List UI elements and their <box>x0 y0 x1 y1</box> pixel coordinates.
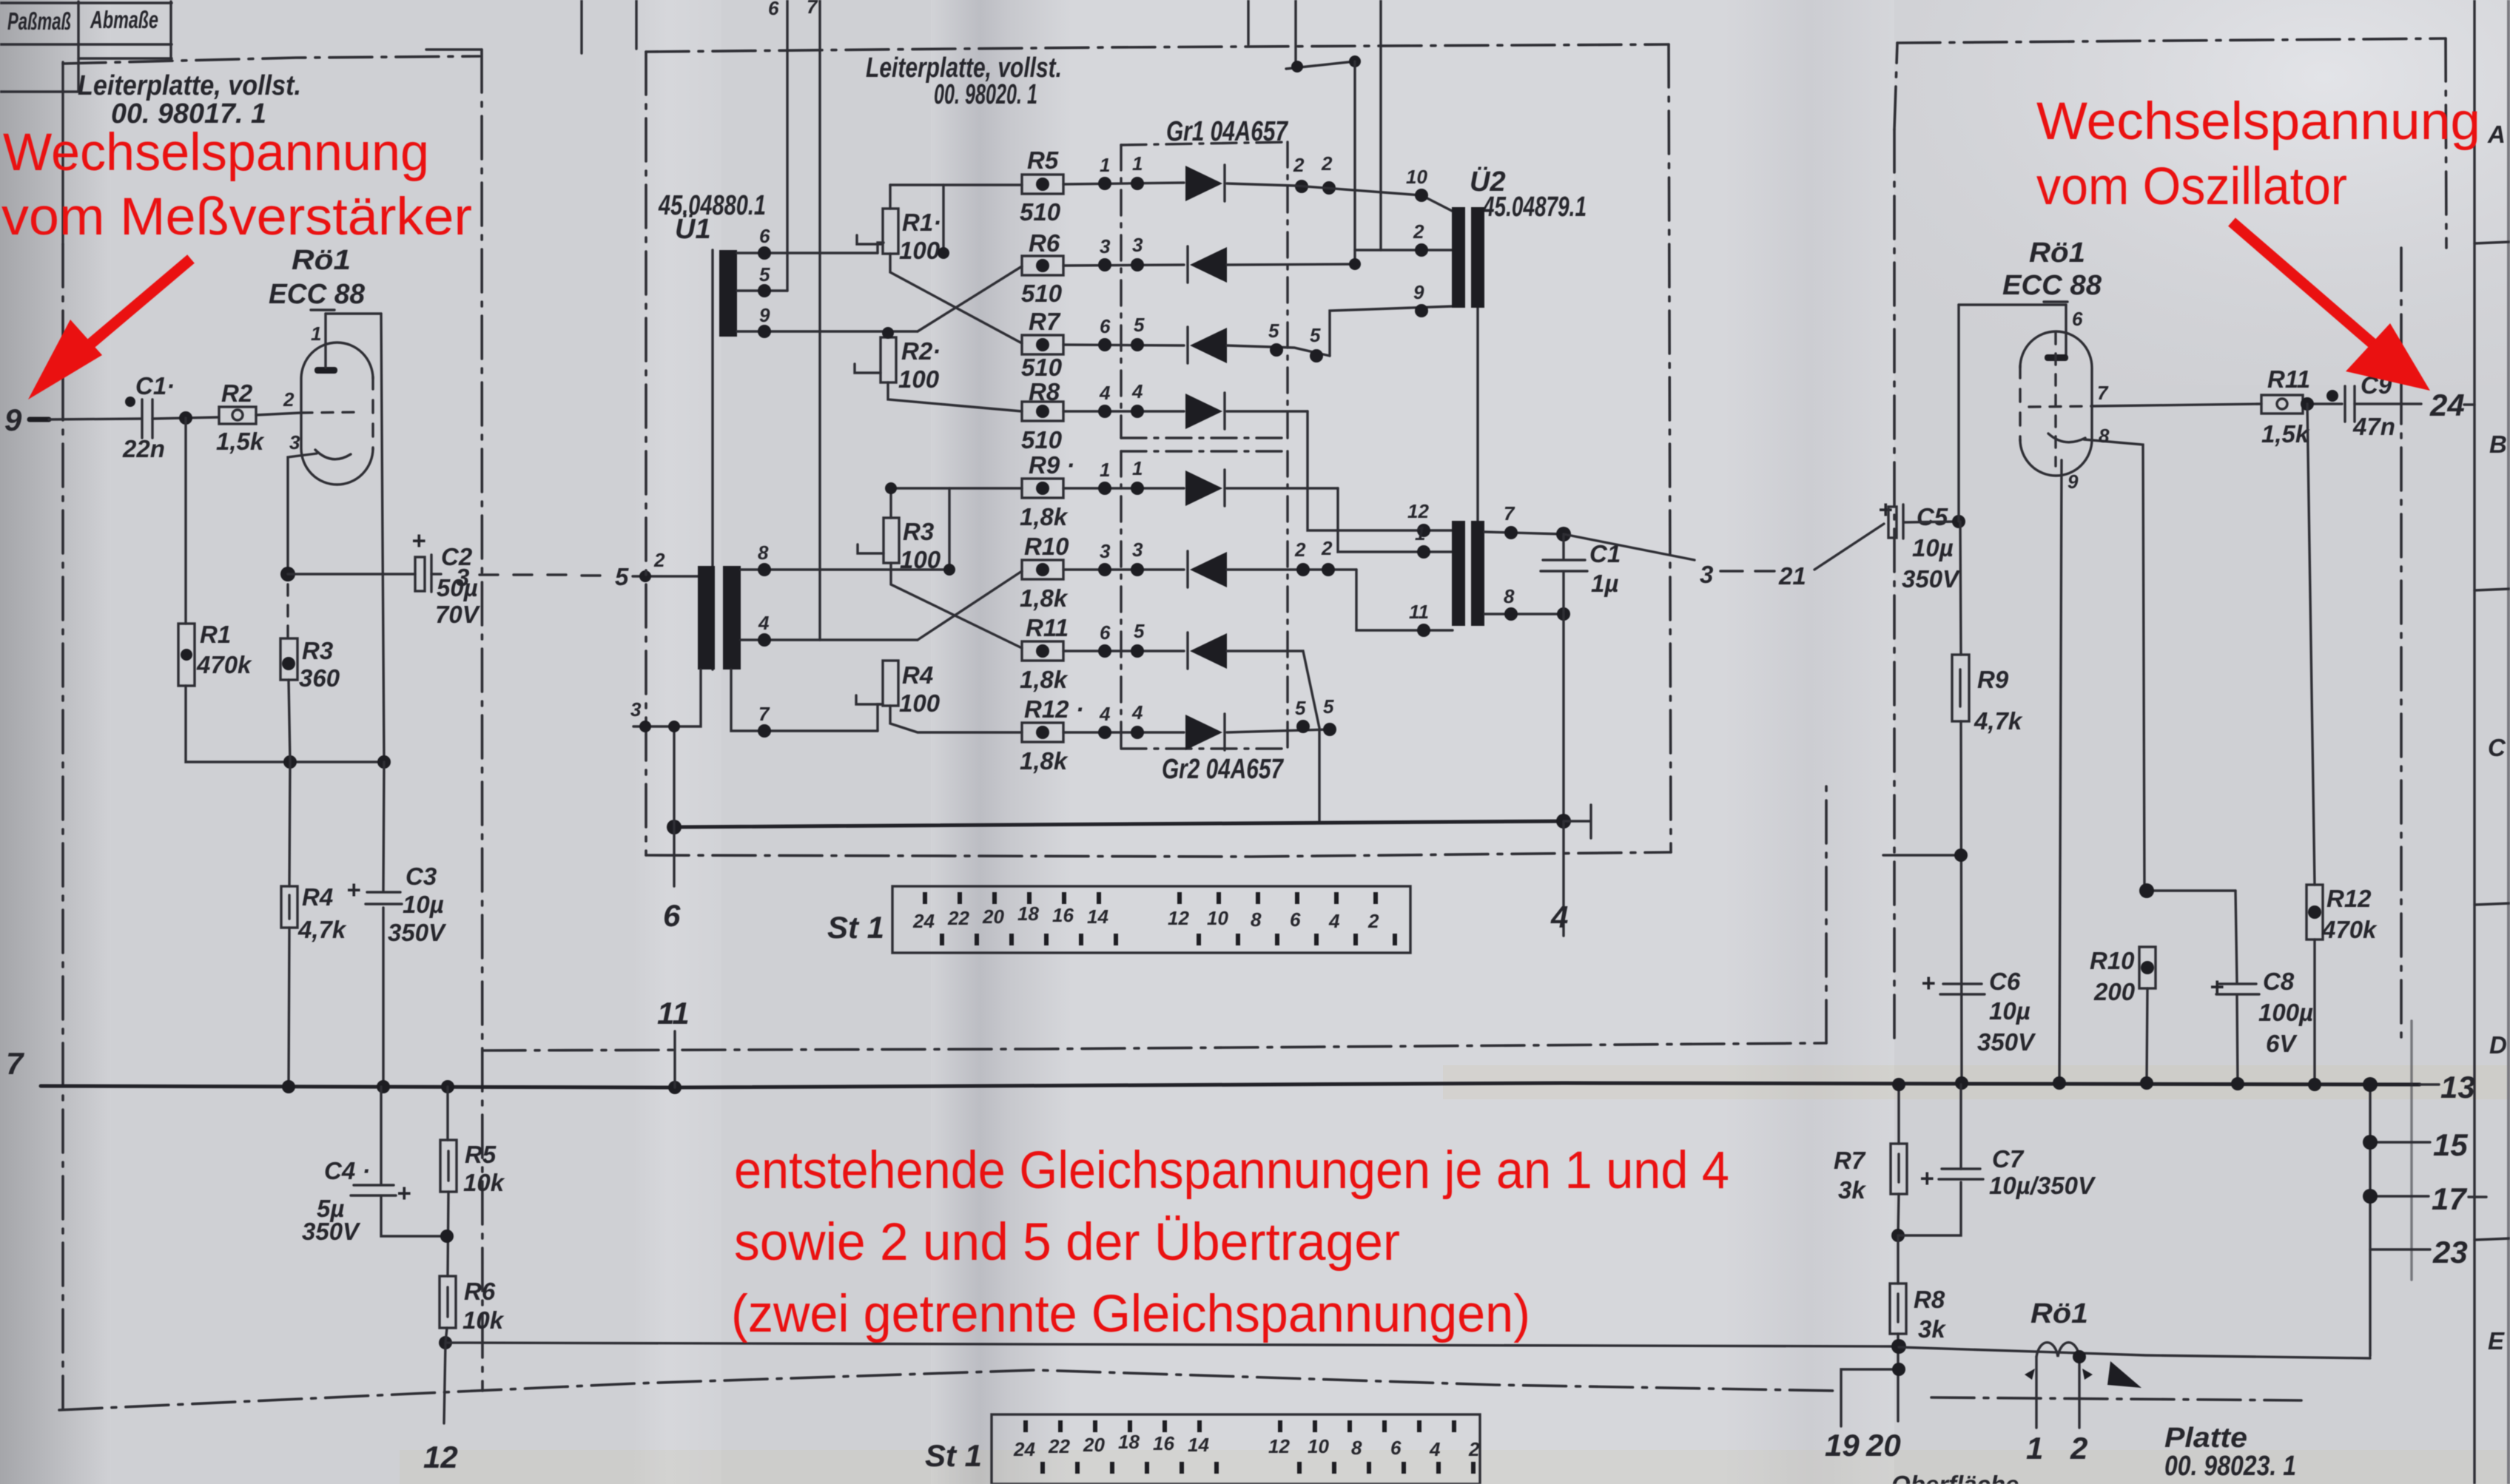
svg-text:16: 16 <box>1052 904 1074 926</box>
svg-text:10µ: 10µ <box>1989 997 2030 1025</box>
svg-text:350V: 350V <box>388 919 447 946</box>
svg-text:7: 7 <box>1504 502 1515 525</box>
svg-text:+: + <box>346 876 360 903</box>
svg-text:+: + <box>1878 496 1892 523</box>
svg-text:4: 4 <box>1131 380 1143 402</box>
svg-text:360: 360 <box>299 664 340 692</box>
svg-text:1: 1 <box>2026 1431 2043 1466</box>
svg-text:100µ: 100µ <box>2258 999 2313 1026</box>
svg-text:C4 ·: C4 · <box>324 1157 370 1184</box>
svg-text:5: 5 <box>1134 620 1145 642</box>
svg-text:10µ: 10µ <box>403 891 444 918</box>
svg-text:R10: R10 <box>1024 533 1069 560</box>
svg-text:10: 10 <box>1308 1435 1329 1457</box>
svg-text:21: 21 <box>1778 562 1806 590</box>
svg-text:2: 2 <box>653 549 665 571</box>
svg-text:vom Oszillator: vom Oszillator <box>2036 158 2347 216</box>
svg-text:R7: R7 <box>1029 308 1061 335</box>
svg-text:24: 24 <box>912 910 935 932</box>
svg-text:6: 6 <box>1290 908 1301 931</box>
svg-text:Platte: Platte <box>2164 1423 2247 1454</box>
svg-text:C: C <box>2488 734 2506 761</box>
svg-text:5: 5 <box>1134 314 1145 336</box>
svg-text:100: 100 <box>899 237 941 264</box>
svg-text:Paßmaß: Paßmaß <box>7 7 71 35</box>
svg-text:C3: C3 <box>406 863 437 890</box>
svg-text:15: 15 <box>2433 1127 2468 1162</box>
svg-text:+: + <box>1919 1164 1934 1192</box>
svg-text:8: 8 <box>758 542 769 564</box>
svg-text:2: 2 <box>1321 152 1333 175</box>
svg-text:13: 13 <box>2440 1070 2475 1104</box>
svg-text:5: 5 <box>1310 324 1321 346</box>
svg-text:4: 4 <box>1099 382 1111 404</box>
svg-text:7: 7 <box>807 0 818 18</box>
svg-text:12: 12 <box>1168 907 1189 929</box>
svg-text:4: 4 <box>1099 703 1111 725</box>
svg-text:B: B <box>2489 431 2507 458</box>
svg-text:2: 2 <box>283 388 295 411</box>
svg-text:10µ: 10µ <box>1912 534 1954 561</box>
svg-text:00. 98023. 1: 00. 98023. 1 <box>2164 1451 2296 1482</box>
svg-text:24: 24 <box>1013 1438 1035 1460</box>
svg-text:+: + <box>411 527 425 554</box>
svg-text:R9 ·: R9 · <box>1029 451 1074 479</box>
svg-text:Rö1: Rö1 <box>2029 237 2085 269</box>
svg-text:1,5k: 1,5k <box>2261 420 2310 448</box>
svg-text:4,7k: 4,7k <box>1974 707 2023 735</box>
svg-text:100: 100 <box>900 546 941 573</box>
svg-text:R2·: R2· <box>901 337 941 365</box>
svg-text:St 1: St 1 <box>827 910 884 945</box>
svg-text:Abmaße: Abmaße <box>90 6 158 33</box>
svg-text:R4: R4 <box>902 661 933 689</box>
svg-text:2: 2 <box>1294 539 1306 561</box>
svg-text:R10: R10 <box>2090 947 2135 974</box>
svg-text:10: 10 <box>1207 907 1228 929</box>
svg-text:+: + <box>2210 973 2224 1000</box>
svg-text:47n: 47n <box>2352 413 2395 440</box>
svg-text:C7: C7 <box>1992 1145 2025 1173</box>
svg-text:C8: C8 <box>2263 968 2295 995</box>
svg-text:2: 2 <box>1468 1438 1480 1460</box>
svg-text:2: 2 <box>1413 220 1424 243</box>
svg-text:470k: 470k <box>2321 916 2378 943</box>
svg-text:1: 1 <box>1100 459 1110 481</box>
svg-text:9: 9 <box>2067 471 2079 493</box>
svg-text:22: 22 <box>1048 1435 1070 1457</box>
svg-text:R3: R3 <box>302 637 333 664</box>
svg-text:4: 4 <box>1131 701 1143 724</box>
svg-text:5: 5 <box>1268 320 1279 342</box>
svg-text:6: 6 <box>1100 621 1111 644</box>
svg-text:510: 510 <box>1021 280 1063 307</box>
svg-text:sowie 2 und 5 der Übertrager: sowie 2 und 5 der Übertrager <box>734 1213 1400 1272</box>
svg-text:R12: R12 <box>2326 885 2372 912</box>
svg-text:6: 6 <box>768 0 779 19</box>
svg-text:1: 1 <box>1100 154 1110 176</box>
svg-text:3: 3 <box>1100 235 1111 257</box>
svg-text:Wechselspannung: Wechselspannung <box>3 124 429 182</box>
svg-text:16: 16 <box>1153 1432 1174 1454</box>
svg-text:3: 3 <box>1132 234 1143 256</box>
svg-text:(zwei getrennte Gleichspannung: (zwei getrennte Gleichspannungen) <box>731 1285 1530 1343</box>
svg-text:1,8k: 1,8k <box>1020 584 1069 612</box>
svg-text:510: 510 <box>1021 426 1063 453</box>
svg-text:Oberfläche: Oberfläche <box>1891 1471 2019 1484</box>
svg-text:6: 6 <box>1100 315 1111 337</box>
svg-text:C6: C6 <box>1989 968 2021 995</box>
svg-text:7: 7 <box>758 703 770 725</box>
svg-text:1,8k: 1,8k <box>1020 503 1069 530</box>
svg-text:4: 4 <box>1429 1438 1441 1460</box>
svg-text:10k: 10k <box>463 1169 505 1196</box>
svg-text:1: 1 <box>1132 457 1143 479</box>
svg-text:12: 12 <box>1407 500 1429 522</box>
svg-text:350V: 350V <box>1977 1028 2036 1056</box>
svg-text:470k: 470k <box>196 651 252 678</box>
svg-text:1,8k: 1,8k <box>1020 666 1069 693</box>
svg-text:4: 4 <box>1550 900 1568 934</box>
svg-text:Gr1 04A657: Gr1 04A657 <box>1166 116 1288 147</box>
svg-text:R6: R6 <box>464 1278 496 1305</box>
svg-text:+: + <box>1921 969 1935 996</box>
svg-text:5: 5 <box>615 563 629 590</box>
svg-text:18: 18 <box>1017 903 1039 925</box>
svg-text:9: 9 <box>4 402 22 437</box>
svg-text:12: 12 <box>1268 1435 1290 1457</box>
svg-text:2: 2 <box>1367 910 1379 932</box>
svg-text:entstehende Gleichspannungen j: entstehende Gleichspannungen je an 1 und… <box>734 1141 1729 1200</box>
svg-text:6: 6 <box>759 225 770 247</box>
svg-text:7: 7 <box>2097 382 2109 404</box>
svg-text:R11: R11 <box>1026 614 1069 641</box>
svg-text:100: 100 <box>898 365 940 393</box>
svg-text:R4: R4 <box>302 883 333 911</box>
svg-text:4,7k: 4,7k <box>297 916 347 943</box>
svg-text:Rö1: Rö1 <box>292 245 351 276</box>
svg-text:3: 3 <box>456 564 469 591</box>
svg-text:R5: R5 <box>465 1141 497 1168</box>
svg-text:R1: R1 <box>200 621 231 648</box>
svg-text:R9: R9 <box>1977 666 2009 693</box>
svg-text:8: 8 <box>1251 908 1262 931</box>
svg-text:3: 3 <box>1132 539 1143 561</box>
svg-text:1: 1 <box>311 323 321 345</box>
svg-text:10: 10 <box>1406 166 1427 188</box>
svg-text:6: 6 <box>663 898 681 933</box>
svg-text:3: 3 <box>630 698 642 721</box>
svg-text:R3: R3 <box>903 518 934 545</box>
svg-text:100: 100 <box>899 689 941 717</box>
svg-text:4: 4 <box>758 612 770 634</box>
svg-text:R7: R7 <box>1834 1147 1866 1174</box>
svg-text:ECC 88: ECC 88 <box>2002 270 2102 301</box>
svg-text:10µ/350V: 10µ/350V <box>1989 1172 2096 1199</box>
svg-text:11: 11 <box>657 996 690 1031</box>
svg-text:1: 1 <box>1132 152 1143 175</box>
svg-text:350V: 350V <box>302 1218 361 1245</box>
svg-text:2: 2 <box>1321 537 1333 559</box>
svg-text:6: 6 <box>1390 1437 1402 1459</box>
svg-text:1: 1 <box>1415 522 1425 544</box>
svg-text:20: 20 <box>1083 1434 1105 1456</box>
svg-text:R5: R5 <box>1027 146 1059 174</box>
svg-text:5: 5 <box>1323 695 1334 718</box>
svg-text:22: 22 <box>947 907 969 929</box>
svg-text:D: D <box>2489 1031 2507 1059</box>
svg-text:70V: 70V <box>435 601 481 628</box>
svg-text:R8: R8 <box>1029 378 1060 405</box>
svg-text:R11: R11 <box>2267 365 2310 393</box>
svg-text:1µ: 1µ <box>1591 570 1618 597</box>
svg-text:3: 3 <box>1700 561 1713 588</box>
svg-text:8: 8 <box>2099 425 2110 447</box>
svg-text:7: 7 <box>6 1046 24 1081</box>
svg-text:18: 18 <box>1118 1431 1140 1453</box>
svg-text:Rö1: Rö1 <box>2030 1298 2088 1329</box>
svg-text:8: 8 <box>1351 1437 1362 1459</box>
svg-text:2: 2 <box>1293 154 1305 176</box>
svg-text:R12 ·: R12 · <box>1024 695 1084 723</box>
svg-text:10k: 10k <box>462 1306 505 1334</box>
svg-text:ECC 88: ECC 88 <box>269 279 366 310</box>
svg-text:5: 5 <box>1295 697 1306 719</box>
svg-text:45.04879.1: 45.04879.1 <box>1482 192 1587 223</box>
svg-text:5: 5 <box>759 263 770 286</box>
svg-text:Gr2 04A657: Gr2 04A657 <box>1162 754 1284 785</box>
svg-text:20: 20 <box>1865 1428 1901 1463</box>
svg-text:6: 6 <box>2072 308 2083 330</box>
svg-text:11: 11 <box>1409 601 1429 623</box>
svg-text:St 1: St 1 <box>925 1438 982 1473</box>
svg-text:A: A <box>2487 121 2506 148</box>
svg-text:vom Meßverstärker: vom Meßverstärker <box>1 188 472 246</box>
svg-text:3: 3 <box>289 431 300 453</box>
svg-text:510: 510 <box>1021 354 1063 381</box>
svg-text:23: 23 <box>2432 1235 2468 1269</box>
svg-text:R6: R6 <box>1029 229 1060 257</box>
svg-text:24: 24 <box>2429 388 2465 422</box>
svg-text:14: 14 <box>1188 1434 1209 1456</box>
svg-text:1,5k: 1,5k <box>216 428 265 455</box>
svg-text:12: 12 <box>423 1440 458 1474</box>
svg-text:Wechselspannung: Wechselspannung <box>2036 92 2480 151</box>
svg-text:8: 8 <box>1504 585 1515 607</box>
svg-text:17: 17 <box>2432 1181 2467 1216</box>
svg-text:R1·: R1· <box>902 209 941 236</box>
svg-text:3k: 3k <box>1918 1315 1946 1343</box>
svg-text:00. 98020. 1: 00. 98020. 1 <box>934 79 1037 110</box>
svg-text:350V: 350V <box>1902 565 1961 593</box>
svg-text:22n: 22n <box>122 435 165 462</box>
svg-text:9: 9 <box>759 304 770 326</box>
svg-text:R8: R8 <box>1914 1286 1945 1313</box>
svg-text:19: 19 <box>1825 1428 1860 1463</box>
svg-text:6V: 6V <box>2266 1030 2298 1057</box>
svg-text:3k: 3k <box>1838 1176 1866 1204</box>
svg-text:1,8k: 1,8k <box>1020 747 1069 775</box>
svg-text:510: 510 <box>1020 198 1061 226</box>
svg-text:20: 20 <box>982 905 1004 928</box>
svg-text:3: 3 <box>1100 540 1111 562</box>
svg-text:+: + <box>397 1179 411 1207</box>
svg-text:E: E <box>2488 1327 2505 1355</box>
svg-text:14: 14 <box>1087 905 1108 928</box>
svg-text:9: 9 <box>1413 281 1424 303</box>
svg-text:4: 4 <box>1328 910 1340 932</box>
svg-text:2: 2 <box>2070 1431 2087 1466</box>
svg-text:Leiterplatte, vollst.: Leiterplatte, vollst. <box>78 70 301 101</box>
svg-text:C1·: C1· <box>135 372 175 399</box>
svg-text:200: 200 <box>2093 978 2136 1005</box>
svg-text:Ü1: Ü1 <box>675 213 711 245</box>
svg-text:R2: R2 <box>221 380 253 407</box>
